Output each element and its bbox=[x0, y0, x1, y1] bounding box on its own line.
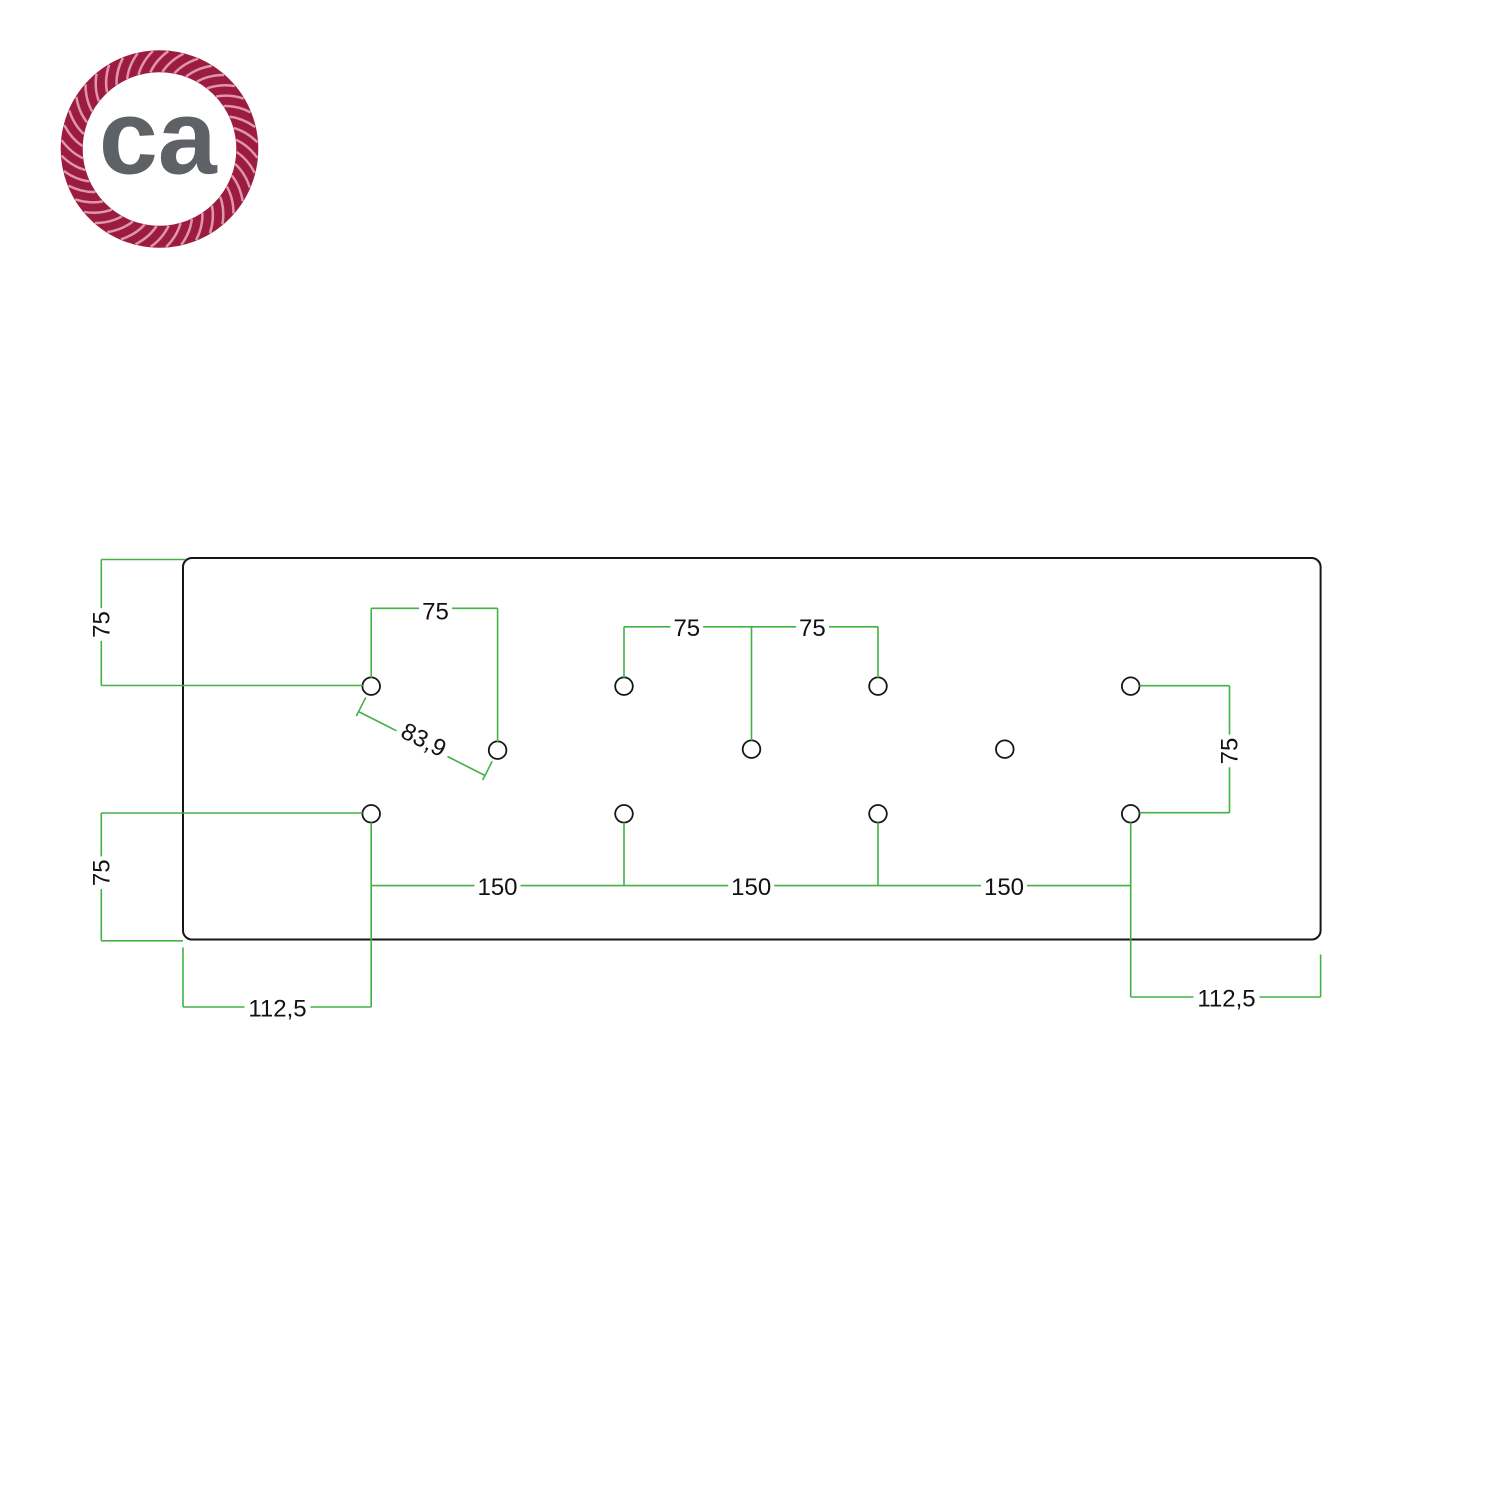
svg-text:112,5: 112,5 bbox=[1197, 985, 1255, 1012]
svg-text:83,9: 83,9 bbox=[397, 718, 451, 763]
svg-text:150: 150 bbox=[731, 874, 771, 901]
svg-text:75: 75 bbox=[88, 611, 115, 638]
svg-text:75: 75 bbox=[422, 599, 449, 626]
svg-text:150: 150 bbox=[477, 874, 517, 901]
svg-text:112,5: 112,5 bbox=[248, 995, 306, 1022]
svg-text:75: 75 bbox=[673, 615, 700, 642]
svg-text:75: 75 bbox=[1216, 738, 1243, 765]
svg-text:ca: ca bbox=[99, 79, 218, 197]
svg-text:150: 150 bbox=[984, 874, 1024, 901]
svg-text:75: 75 bbox=[799, 615, 826, 642]
svg-text:75: 75 bbox=[88, 859, 115, 886]
